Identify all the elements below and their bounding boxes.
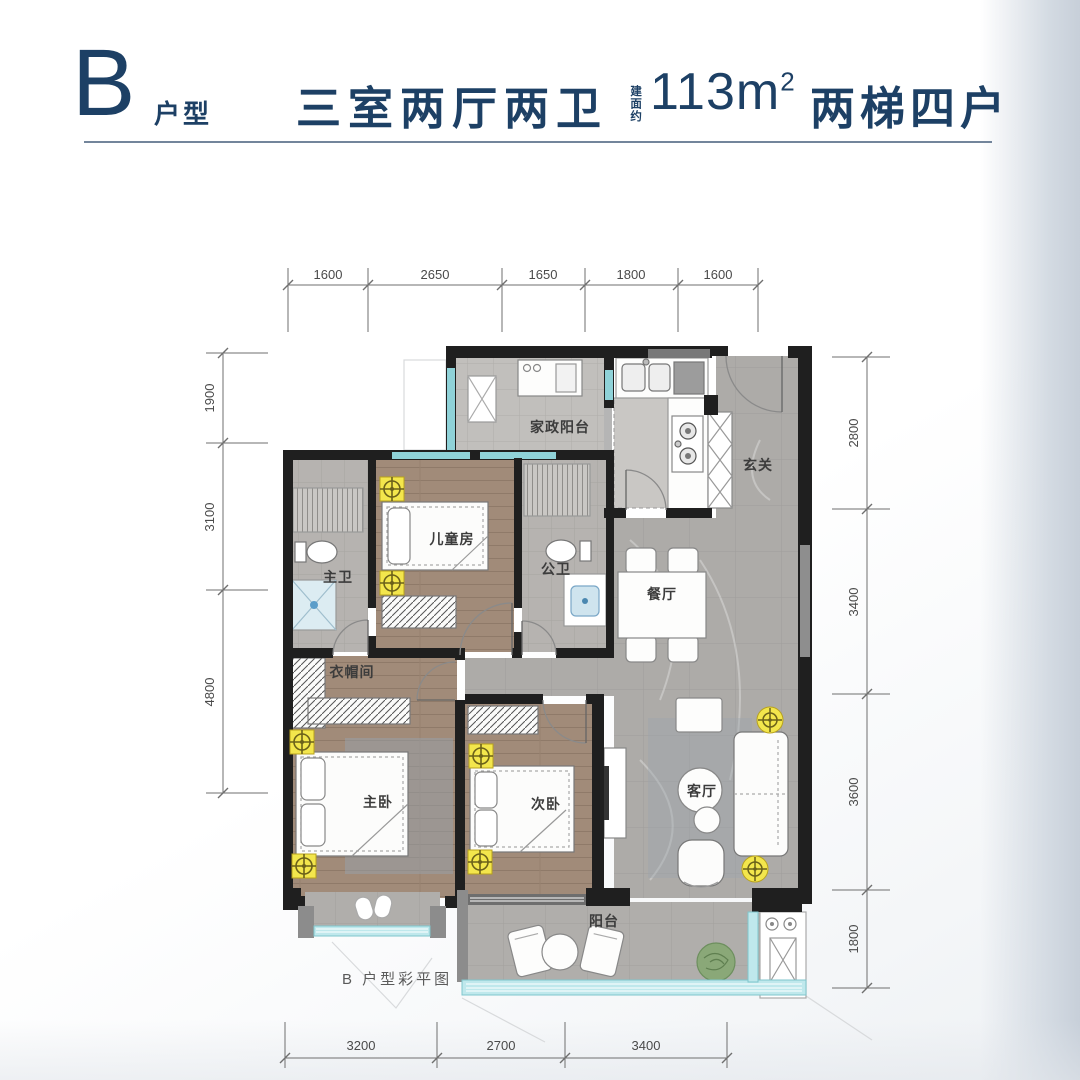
armchair-icon bbox=[678, 840, 724, 887]
balcony-table bbox=[542, 934, 578, 970]
dim-bottom-1: 3200 bbox=[347, 1038, 376, 1053]
ceiling-light-icon bbox=[468, 850, 492, 874]
dim-top-5: 1600 bbox=[704, 267, 733, 282]
dim-top-4: 1800 bbox=[617, 267, 646, 282]
small-table bbox=[694, 807, 720, 833]
ceiling-light-icon bbox=[292, 854, 316, 878]
window-unit-icon bbox=[468, 376, 496, 422]
dim-top-3: 1650 bbox=[529, 267, 558, 282]
dim-left-1: 1900 bbox=[202, 384, 217, 413]
room-label-public-bath: 公卫 bbox=[541, 561, 571, 577]
corridor-floor bbox=[465, 658, 614, 696]
ceiling-light-icon bbox=[290, 730, 314, 754]
room-label-entry: 玄关 bbox=[743, 457, 773, 473]
ceiling-light-icon bbox=[469, 744, 493, 768]
toilet-icon bbox=[295, 541, 337, 563]
washing-machine-icon bbox=[518, 360, 582, 396]
plant-icon bbox=[697, 943, 735, 981]
room-label-master-bath: 主卫 bbox=[323, 569, 353, 585]
dim-right-2: 3400 bbox=[846, 588, 861, 617]
dimension-right bbox=[832, 352, 890, 993]
kids-wardrobe bbox=[382, 596, 456, 628]
ceiling-light-icon bbox=[380, 477, 404, 501]
floorplan-poster: B 户型 三室两厅两卫 建面约 113m2 两梯四户 bbox=[0, 0, 1080, 1080]
sofa-icon bbox=[734, 732, 788, 856]
room-label-dining: 餐厅 bbox=[646, 586, 677, 602]
dining-table bbox=[618, 572, 706, 638]
public-bath-counter bbox=[524, 464, 590, 516]
dim-left-3: 4800 bbox=[202, 678, 217, 707]
side-table bbox=[676, 698, 722, 732]
room-label-kids-room: 儿童房 bbox=[429, 531, 475, 547]
room-label-master-bedroom: 主卧 bbox=[363, 794, 393, 810]
kitchen-floor bbox=[614, 398, 668, 508]
ceiling-light-icon bbox=[742, 856, 768, 882]
washbasin-icon bbox=[564, 574, 606, 626]
kitchen-sink-icon bbox=[616, 358, 708, 398]
room-label-cloakroom: 衣帽间 bbox=[330, 664, 375, 680]
toilet-icon bbox=[546, 540, 591, 562]
cloakroom-wardrobe-bottom bbox=[308, 698, 410, 724]
floorplan-drawing: 家政阳台 玄关 儿童房 主卫 公卫 餐厅 衣帽间 主卧 次卧 客厅 阳台 bbox=[0, 0, 1080, 1080]
dim-top-1: 1600 bbox=[314, 267, 343, 282]
dim-right-4: 1800 bbox=[846, 925, 861, 954]
dim-right-1: 2800 bbox=[846, 419, 861, 448]
dim-bottom-3: 3400 bbox=[632, 1038, 661, 1053]
master-bath-vanity bbox=[293, 488, 363, 532]
second-wardrobe bbox=[468, 706, 538, 734]
dimension-top bbox=[283, 268, 763, 332]
room-label-utility-balcony: 家政阳台 bbox=[530, 419, 590, 435]
dim-right-3: 3600 bbox=[846, 778, 861, 807]
dim-top-2: 2650 bbox=[421, 267, 450, 282]
room-label-living-room: 客厅 bbox=[686, 783, 717, 799]
stove-icon bbox=[672, 416, 703, 472]
ceiling-light-icon bbox=[380, 571, 404, 595]
ceiling-light-icon bbox=[757, 707, 783, 733]
tv-console bbox=[604, 748, 626, 838]
entry-closet-icon bbox=[708, 412, 732, 508]
dimension-left bbox=[206, 348, 268, 798]
shower-icon bbox=[292, 580, 336, 630]
dim-bottom-2: 2700 bbox=[487, 1038, 516, 1053]
plan-caption: B 户型彩平图 bbox=[342, 971, 452, 988]
dim-left-2: 3100 bbox=[202, 503, 217, 532]
room-label-second-bedroom: 次卧 bbox=[531, 796, 561, 812]
room-label-balcony: 阳台 bbox=[589, 913, 619, 929]
